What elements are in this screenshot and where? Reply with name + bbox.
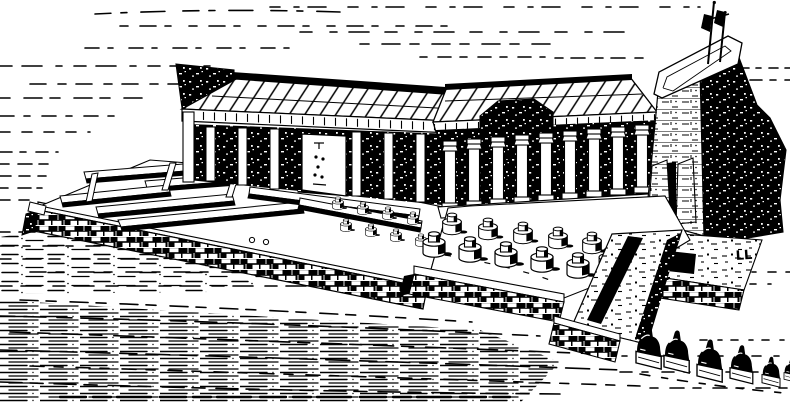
temple-engraving: LL [0,0,790,403]
engraver-signature: LL [735,248,753,264]
pylon-shaded-face [700,47,786,241]
hypostyle-hall [433,74,667,218]
sphinx-avenue [636,326,790,387]
engraving-page: LL [0,0,790,403]
